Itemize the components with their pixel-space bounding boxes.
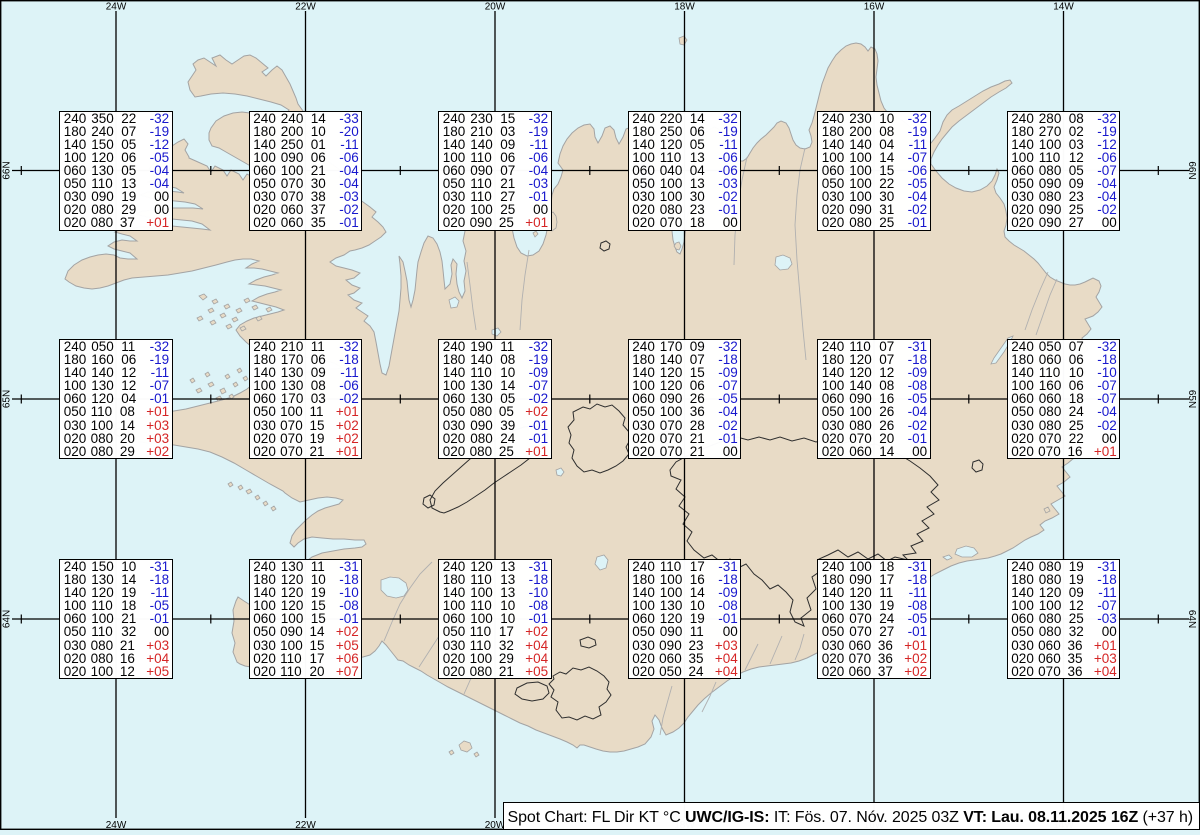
svg-text:14W: 14W — [1053, 2, 1074, 13]
svg-text:64N: 64N — [2, 610, 13, 628]
svg-text:65N: 65N — [2, 390, 13, 408]
svg-text:64N: 64N — [1186, 610, 1197, 628]
svg-text:20W: 20W — [485, 2, 506, 13]
svg-text:66N: 66N — [2, 161, 13, 179]
svg-text:18W: 18W — [674, 2, 695, 13]
svg-text:16W: 16W — [864, 2, 885, 13]
svg-text:24W: 24W — [106, 2, 127, 13]
svg-text:24W: 24W — [106, 820, 127, 830]
svg-text:66N: 66N — [1186, 161, 1197, 179]
svg-text:22W: 22W — [295, 2, 316, 13]
svg-text:65N: 65N — [1186, 390, 1197, 408]
svg-text:22W: 22W — [295, 820, 316, 830]
